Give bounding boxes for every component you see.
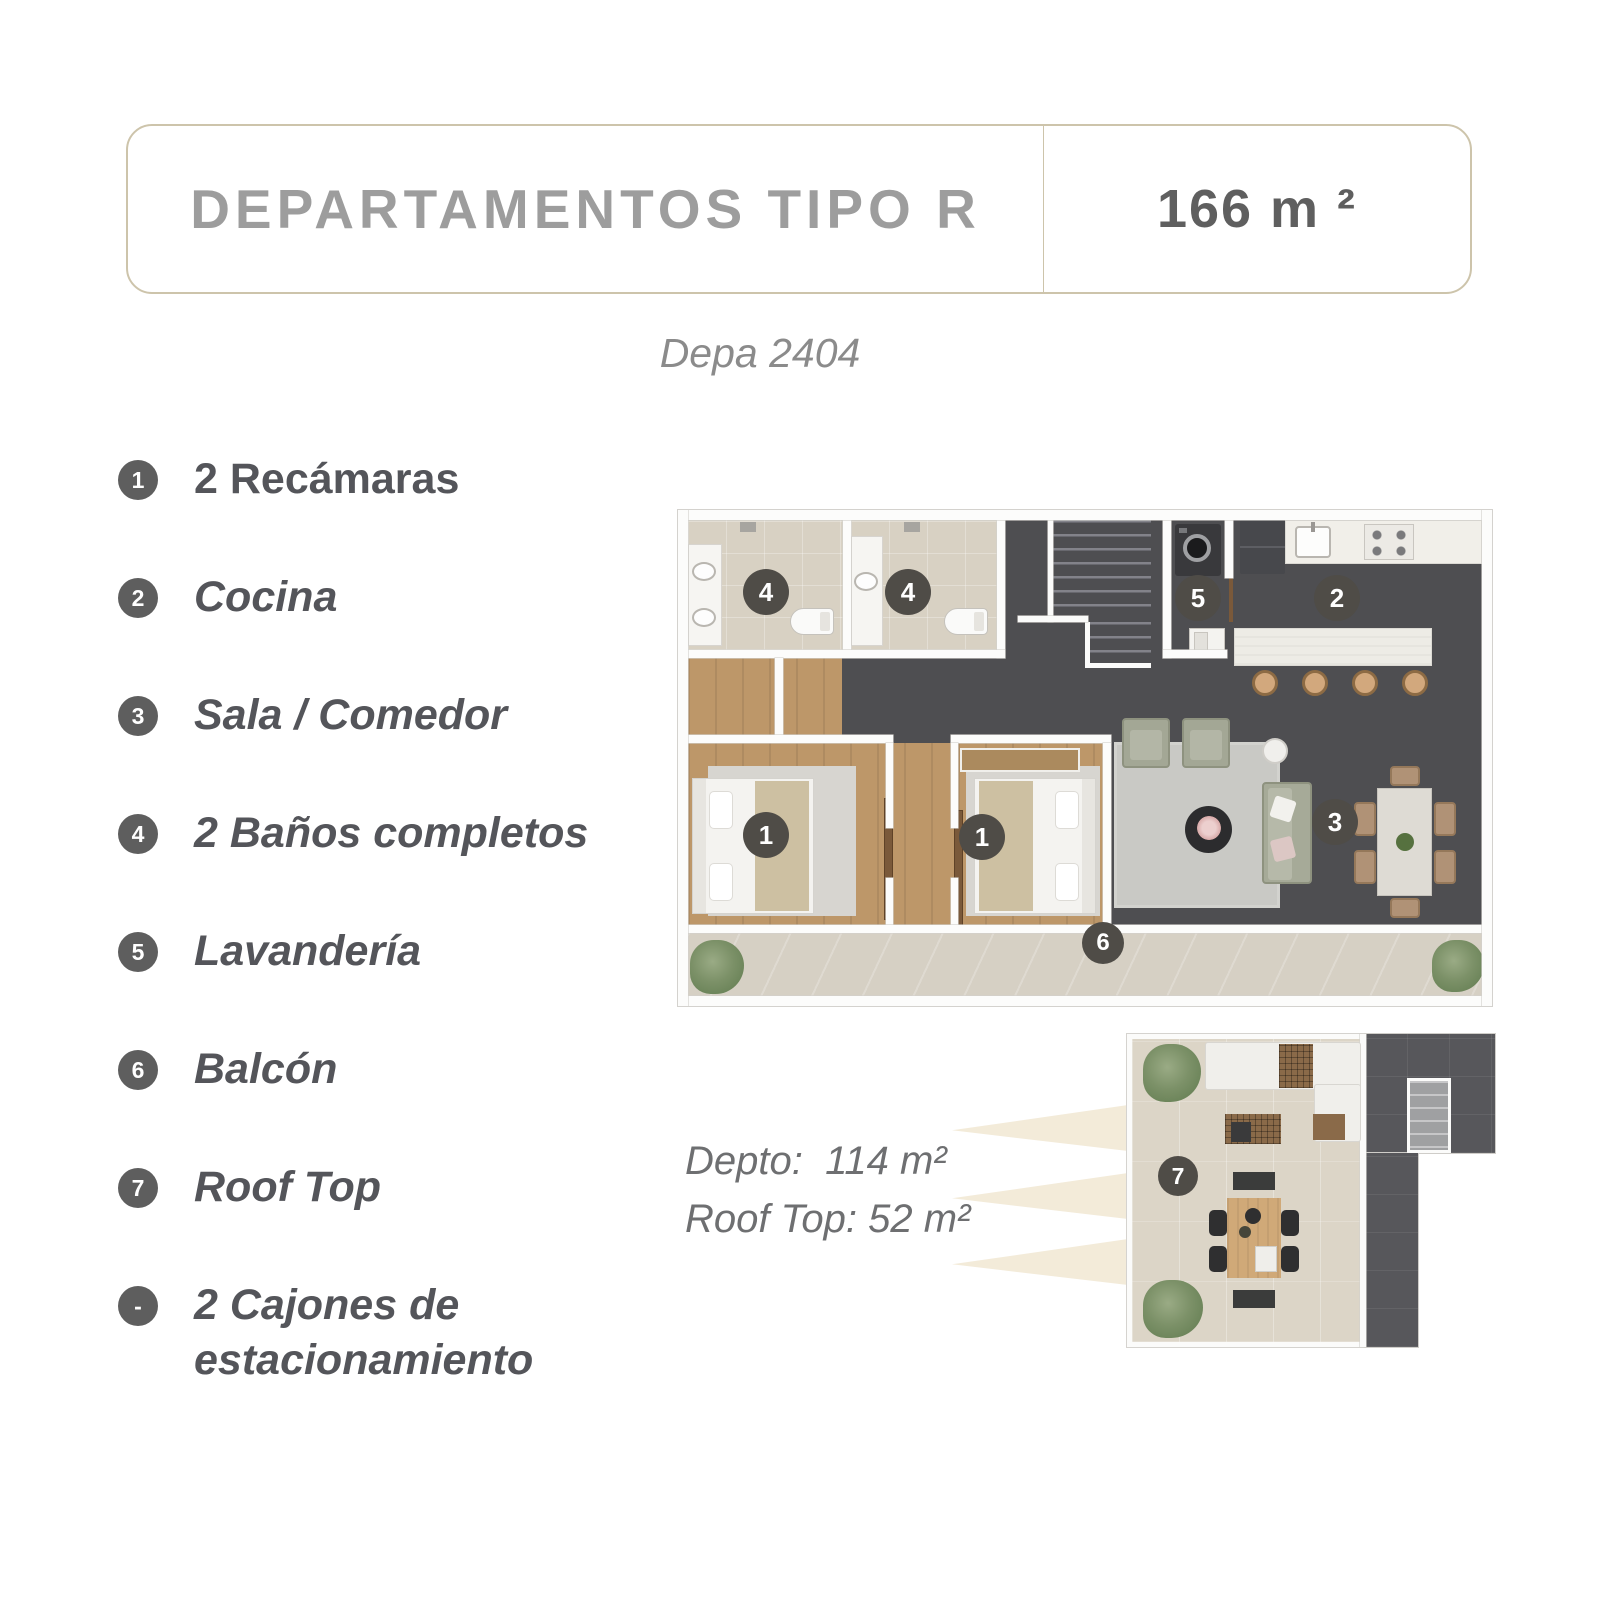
feature-item-recamaras: 1 2 Recámaras xyxy=(118,452,644,507)
wall xyxy=(688,650,1005,658)
marker-kitchen: 2 xyxy=(1314,575,1360,621)
light-ray-decoration xyxy=(952,1105,1128,1151)
kitchen-island-icon xyxy=(1234,628,1432,666)
feature-item-rooftop: 7 Roof Top xyxy=(118,1160,644,1215)
side-table-icon xyxy=(1262,738,1288,764)
rooftop-area-text: Roof Top: 52 m² xyxy=(685,1190,970,1248)
feature-item-sala-comedor: 3 Sala / Comedor xyxy=(118,688,644,743)
marker-bathroom-1: 4 xyxy=(743,569,789,615)
hallway-floor xyxy=(688,658,842,735)
wall xyxy=(1018,616,1088,622)
armchair-icon xyxy=(1182,718,1230,768)
wall xyxy=(886,743,893,828)
wall xyxy=(1103,743,1111,925)
vanity-icon xyxy=(688,544,722,646)
rooftop-floorplan: 7 xyxy=(1127,1034,1495,1347)
stool-icon xyxy=(1402,670,1428,696)
marker-bathroom-2: 4 xyxy=(885,569,931,615)
toilet-icon xyxy=(944,608,988,635)
stairs-icon xyxy=(1407,1078,1451,1153)
feature-2-badge: 2 xyxy=(118,578,158,618)
tray-icon xyxy=(1255,1246,1277,1272)
stairwell-corridor xyxy=(1365,1153,1418,1347)
feature-4-badge: 4 xyxy=(118,814,158,854)
wall xyxy=(1225,520,1233,578)
wall xyxy=(843,520,851,650)
armchair-icon xyxy=(1122,718,1170,768)
shower-icon xyxy=(904,522,920,532)
feature-item-lavanderia: 5 Lavandería xyxy=(118,924,644,979)
feature-2-label: Cocina xyxy=(194,570,337,625)
marker-rooftop: 7 xyxy=(1158,1156,1198,1196)
coffee-table-icon xyxy=(1185,806,1232,853)
pouf-icon xyxy=(1313,1114,1345,1140)
sink-icon xyxy=(854,572,878,591)
fridge-icon xyxy=(1240,520,1285,574)
stairs-icon xyxy=(1085,622,1151,668)
closet-icon xyxy=(960,748,1080,772)
rooftop-info: Depto: 114 m²Roof Top: 52 m² xyxy=(685,1132,970,1248)
chair-icon xyxy=(1390,898,1420,918)
mat-icon xyxy=(1233,1290,1275,1308)
tray-icon xyxy=(1231,1122,1251,1142)
stool-icon xyxy=(1352,670,1378,696)
chair-icon xyxy=(1434,850,1456,884)
shower-icon xyxy=(740,522,756,532)
light-ray-decoration xyxy=(952,1173,1128,1219)
dining-table-icon xyxy=(1377,788,1432,896)
stove-icon xyxy=(1364,524,1414,560)
header-area-section: 166 m ² xyxy=(1044,126,1470,292)
chair-icon xyxy=(1281,1210,1299,1236)
light-ray-decoration xyxy=(952,1239,1128,1285)
wall xyxy=(951,878,958,925)
stairs-icon xyxy=(1053,520,1151,616)
marker-living-dining: 3 xyxy=(1312,799,1358,845)
feature-8-label: 2 Cajones de estacionamiento xyxy=(194,1278,644,1388)
table-decor-icon xyxy=(1245,1208,1261,1224)
sink-icon xyxy=(692,562,716,581)
chair-icon xyxy=(1209,1210,1227,1236)
stool-icon xyxy=(1252,670,1278,696)
chair-icon xyxy=(1281,1246,1299,1272)
wall xyxy=(951,735,1111,743)
wall xyxy=(1163,650,1227,658)
sink-icon xyxy=(692,608,716,627)
washer-icon xyxy=(1175,524,1221,576)
area-value: 166 m ² xyxy=(1157,178,1357,240)
feature-7-label: Roof Top xyxy=(194,1160,381,1215)
feature-5-label: Lavandería xyxy=(194,924,421,979)
feature-7-badge: 7 xyxy=(118,1168,158,1208)
table-decor-icon xyxy=(1239,1226,1251,1238)
chair-icon xyxy=(1209,1246,1227,1272)
feature-list: 1 2 Recámaras 2 Cocina 3 Sala / Comedor … xyxy=(118,452,644,1451)
wicker-pad-icon xyxy=(1279,1044,1313,1088)
header-title-section: DEPARTAMENTOS TIPO R xyxy=(128,126,1044,292)
chair-icon xyxy=(1390,766,1420,786)
wall xyxy=(997,520,1005,658)
toilet-icon xyxy=(790,608,834,635)
feature-3-label: Sala / Comedor xyxy=(194,688,507,743)
feature-4-label: 2 Baños completos xyxy=(194,806,588,861)
wall xyxy=(886,878,893,925)
unit-subtitle: Depa 2404 xyxy=(480,330,1040,377)
marker-bedroom-1: 1 xyxy=(743,812,789,858)
wall xyxy=(1482,510,1492,1006)
page-title: DEPARTAMENTOS TIPO R xyxy=(190,177,981,241)
mat-icon xyxy=(1233,1172,1275,1190)
feature-6-label: Balcón xyxy=(194,1042,337,1097)
stool-icon xyxy=(1302,670,1328,696)
feature-8-badge: - xyxy=(118,1286,158,1326)
wall xyxy=(678,510,688,1006)
wall xyxy=(775,658,783,735)
sofa-icon xyxy=(1262,782,1312,884)
header-card: DEPARTAMENTOS TIPO R 166 m ² xyxy=(126,124,1472,294)
feature-item-estacionamiento: - 2 Cajones de estacionamiento xyxy=(118,1278,644,1388)
feature-1-badge: 1 xyxy=(118,460,158,500)
chair-icon xyxy=(1354,850,1376,884)
marker-bedroom-2: 1 xyxy=(959,814,1005,860)
depto-area-text: Depto: 114 m² xyxy=(685,1132,970,1190)
feature-item-banos: 4 2 Baños completos xyxy=(118,806,644,861)
feature-6-badge: 6 xyxy=(118,1050,158,1090)
feature-item-cocina: 2 Cocina xyxy=(118,570,644,625)
wall xyxy=(1163,520,1171,658)
chair-icon xyxy=(1434,802,1456,836)
feature-item-balcon: 6 Balcón xyxy=(118,1042,644,1097)
feature-3-badge: 3 xyxy=(118,696,158,736)
door-icon xyxy=(1229,578,1233,622)
feature-1-label: 2 Recámaras xyxy=(194,452,459,507)
marker-laundry: 5 xyxy=(1175,575,1221,621)
vanity-icon xyxy=(851,536,883,646)
wall xyxy=(688,735,893,743)
wall xyxy=(678,510,1492,520)
feature-5-badge: 5 xyxy=(118,932,158,972)
wall xyxy=(678,996,1492,1006)
main-floorplan: 4 4 5 2 1 1 3 6 xyxy=(678,510,1492,1006)
wall xyxy=(1048,520,1053,622)
wall xyxy=(951,743,958,828)
marker-balcony: 6 xyxy=(1082,922,1124,964)
kitchen-sink-icon xyxy=(1295,526,1331,558)
